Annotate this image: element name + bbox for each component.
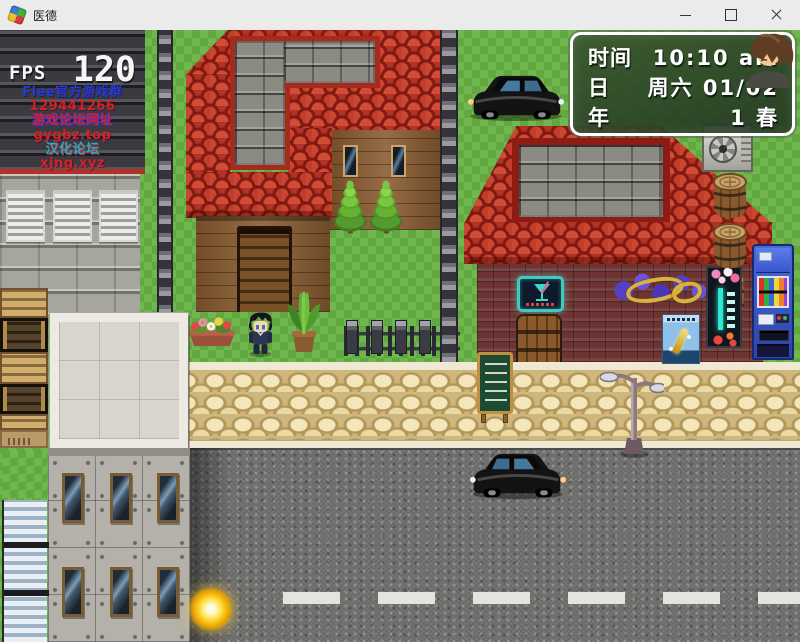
left-house-stone-leg [230, 36, 290, 170]
bottle-graphic [672, 328, 689, 355]
metal-pillar [440, 30, 458, 362]
promo-links: Fiee官方游戏群 129441266 游戏论坛网址 gygbz.top 汉化论… [0, 86, 145, 171]
striped-shutters [2, 500, 47, 642]
minimize-button[interactable] [662, 0, 708, 30]
graffiti-art [610, 268, 708, 308]
crate [0, 414, 48, 430]
flower-decoration [708, 268, 744, 286]
link-translation-url: xjng.xyz [0, 157, 145, 171]
title-bar[interactable]: 医德 [0, 0, 800, 31]
building-window [110, 473, 132, 523]
roller-shutter-window [53, 190, 92, 242]
window-title: 医德 [33, 7, 57, 24]
player-character [244, 311, 277, 357]
player-avatar [742, 30, 794, 88]
sidewalk-cobblestone [145, 370, 800, 440]
street-lamp [600, 360, 664, 460]
year-label: 年 [588, 102, 610, 132]
fence-post [346, 320, 358, 354]
metal-pillar [157, 30, 173, 314]
app-window: 医德 [0, 0, 800, 642]
sign-leg [481, 414, 486, 423]
year-row: 年 1 春 [588, 102, 779, 132]
dispense-tray [757, 344, 789, 357]
crate [0, 352, 48, 384]
close-button[interactable] [754, 0, 800, 30]
left-house-roof-face [186, 74, 230, 176]
day-label: 日 [588, 72, 610, 102]
crate [0, 288, 48, 318]
potted-plant [285, 288, 323, 356]
tiled-plaza [50, 313, 188, 448]
right-house-stone-panel [512, 138, 670, 224]
flower-decoration [708, 330, 744, 348]
building-window [110, 567, 132, 617]
flower-planter [186, 316, 238, 348]
left-house-roof-corner [288, 128, 332, 176]
fence-post [395, 320, 407, 354]
left-house-stone-band [284, 36, 380, 88]
holiday-poster [662, 314, 700, 364]
link-forum-label: 游戏论坛网址 [0, 114, 145, 128]
app-icon [7, 5, 28, 26]
roller-shutter-window [6, 190, 45, 242]
fence-post [371, 320, 383, 354]
cardboard-box [0, 430, 48, 448]
coin-slot [759, 330, 789, 341]
roller-shutter-window [99, 190, 138, 242]
building-window [62, 567, 84, 617]
fps-counter: FPS 120 [0, 52, 145, 88]
maximize-icon [725, 9, 737, 21]
maximize-button[interactable] [708, 0, 754, 30]
wooden-barrel [712, 222, 748, 270]
building-window [157, 473, 179, 523]
glowing-orb [190, 586, 232, 632]
pine-tree [333, 168, 367, 246]
chalkboard-sign [477, 352, 513, 414]
link-translation-forum: 汉化论坛 [0, 143, 145, 157]
game-viewport[interactable]: FPS 120 Fiee官方游戏群 129441266 游戏论坛网址 gygbz… [0, 30, 800, 642]
fan-icon [709, 135, 737, 163]
fps-value: 120 [73, 52, 136, 88]
link-game-group: Fiee官方游戏群 [0, 86, 145, 100]
flower-neon-sign [706, 266, 742, 348]
minimize-icon [680, 15, 691, 16]
driving-car [467, 450, 569, 500]
sign-leg [503, 414, 508, 423]
building-window [62, 473, 84, 523]
pine-tree [369, 168, 403, 246]
left-house-roof-band [186, 172, 332, 218]
window-controls [662, 0, 800, 30]
concrete-building [48, 456, 190, 642]
link-forum-url: gygbz.top [0, 129, 145, 143]
drink-display [757, 276, 789, 308]
building-window [157, 567, 179, 617]
lane-markings [283, 592, 800, 604]
year-value: 1 春 [730, 102, 779, 132]
time-label: 时间 [588, 42, 632, 72]
cocktail-neon-sign [517, 276, 564, 312]
grass-patch [2, 450, 47, 498]
chalk-text [485, 361, 507, 401]
parked-car [466, 72, 566, 122]
fence-post [419, 320, 431, 354]
barrel-door [516, 314, 562, 362]
wooden-barrel [712, 172, 748, 220]
crate [0, 318, 48, 352]
left-house-door [237, 226, 292, 312]
crate [0, 384, 48, 414]
vending-machine [752, 244, 794, 360]
